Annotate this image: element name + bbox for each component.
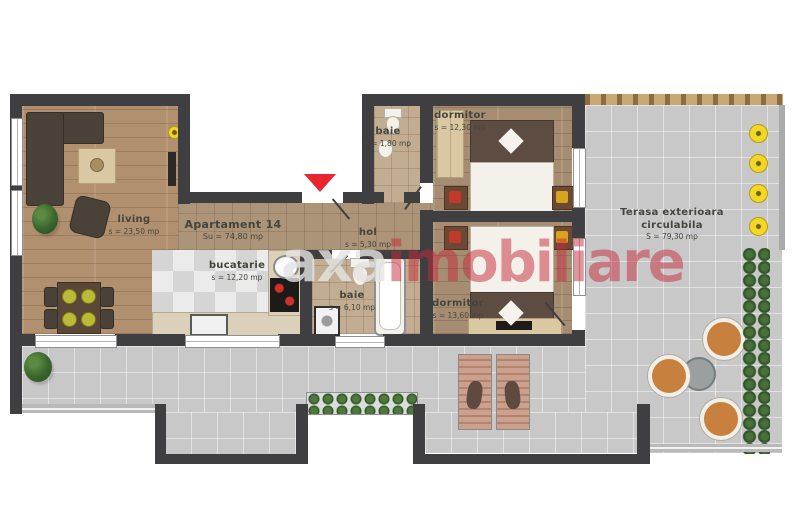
living-plant bbox=[32, 204, 58, 234]
stove bbox=[270, 278, 299, 312]
wall-bottom-4 bbox=[383, 334, 572, 346]
bedroom1-window bbox=[573, 148, 586, 208]
bath-window bbox=[335, 336, 385, 348]
living-window-2 bbox=[11, 190, 23, 256]
room-name: baie bbox=[358, 126, 418, 139]
terrace-floor-bumpout-left bbox=[165, 412, 296, 454]
apartment-title: Apartament 14 Su = 74,80 mp bbox=[163, 218, 303, 242]
sunbed bbox=[496, 354, 530, 430]
room-name: dormitor bbox=[408, 298, 508, 311]
room-area: s = 13,60 mp bbox=[408, 311, 508, 320]
wall-bottom-3 bbox=[278, 334, 335, 346]
wall-top-right bbox=[362, 94, 585, 106]
terrace-floor-bumpout-right bbox=[425, 412, 637, 453]
bath-label: baie s = 6,10 mp bbox=[317, 290, 387, 312]
spotlight-icon bbox=[749, 184, 768, 203]
sunbed bbox=[458, 354, 492, 430]
terrace-edge-bottom-right bbox=[650, 444, 782, 452]
gold-lamp bbox=[556, 191, 568, 203]
room-area: s = 12,30 mp bbox=[410, 123, 510, 132]
spotlight-icon bbox=[749, 217, 768, 236]
wall-right-3 bbox=[572, 330, 585, 346]
dining-table bbox=[57, 282, 101, 334]
wall-bath-small-bottom bbox=[374, 192, 384, 203]
spotlight-icon bbox=[749, 154, 768, 173]
wall-notch-bottom-right bbox=[343, 192, 374, 203]
kitchen-label: bucatarie s = 12,20 mp bbox=[192, 260, 282, 282]
red-lamp bbox=[449, 191, 461, 203]
bed2-body bbox=[470, 226, 554, 294]
apartment-name: Apartament 14 bbox=[163, 218, 303, 232]
living-window-1 bbox=[11, 118, 23, 186]
dining-chair bbox=[44, 309, 58, 329]
terrace-area: S = 79,30 mp bbox=[597, 232, 747, 241]
room-area: s = 23,50 mp bbox=[94, 227, 174, 236]
planter-box bbox=[306, 392, 418, 415]
terrace-name-line1: Terasa exterioara bbox=[597, 207, 747, 220]
wall-bumpout2-bottom bbox=[413, 454, 650, 464]
kitchen-sink bbox=[190, 314, 228, 336]
bed1-body bbox=[470, 162, 554, 214]
floor-plan: living s = 23,50 mp Apartament 14 Su = 7… bbox=[0, 0, 800, 514]
entrance-arrow-icon bbox=[304, 174, 336, 192]
terrace-chair bbox=[700, 398, 742, 440]
sofa-chaise bbox=[26, 112, 64, 206]
terrace-edge-bottom-left bbox=[22, 404, 155, 413]
terrace-edge-right bbox=[779, 105, 785, 250]
bedroom1-label: dormitor s = 12,30 mp bbox=[410, 110, 510, 132]
wall-bath-top-1 bbox=[312, 250, 332, 259]
kitchen-window bbox=[185, 335, 280, 348]
room-area: s = 12,20 mp bbox=[192, 273, 282, 282]
wall-notch-left bbox=[178, 94, 190, 204]
room-area: s = 1,80 mp bbox=[358, 139, 418, 148]
terrace-chair bbox=[703, 318, 745, 360]
spotlight-icon bbox=[749, 124, 768, 143]
room-name: hol bbox=[338, 227, 398, 240]
bedroom2-window bbox=[573, 238, 586, 296]
wall-bottom-2 bbox=[115, 334, 185, 346]
wall-top-left bbox=[10, 94, 190, 106]
terrace-plant bbox=[24, 352, 52, 382]
wall-notch-right bbox=[362, 94, 374, 204]
room-name: bucatarie bbox=[192, 260, 282, 273]
room-name: baie bbox=[317, 290, 387, 303]
bath-small-label: baie s = 1,80 mp bbox=[358, 126, 418, 148]
wall-bedrooms-vertical-bottom bbox=[420, 210, 433, 345]
wall-bath-top-2 bbox=[360, 250, 425, 259]
hall-label: hol s = 5,30 mp bbox=[338, 227, 398, 249]
gold-lamp bbox=[556, 231, 568, 243]
living-terrace-door bbox=[35, 335, 117, 348]
wall-bumpout1-bottom bbox=[155, 454, 308, 464]
wall-right-1 bbox=[572, 94, 585, 148]
terrace-name-line2: circulabila bbox=[597, 220, 747, 233]
red-lamp bbox=[449, 231, 461, 243]
hedge bbox=[742, 248, 770, 454]
wall-bottom-1 bbox=[22, 334, 35, 346]
terrace-top-railing bbox=[585, 94, 783, 105]
wall-kitchen-bath bbox=[300, 250, 312, 334]
dining-chair bbox=[100, 309, 114, 329]
wall-bedroom-divider bbox=[420, 211, 585, 222]
room-name: living bbox=[94, 214, 174, 227]
bedroom2-label: dormitor s = 13,60 mp bbox=[408, 298, 508, 320]
apartment-area: Su = 74,80 mp bbox=[163, 232, 303, 242]
dining-chair bbox=[44, 287, 58, 307]
room-area: s = 6,10 mp bbox=[317, 303, 387, 312]
coffee-table-decor bbox=[90, 158, 104, 172]
wall-notch-bottom-left bbox=[190, 192, 302, 203]
terrace-chair bbox=[648, 355, 690, 397]
tv bbox=[168, 152, 176, 186]
wall-right-2 bbox=[572, 206, 585, 238]
terrace-label: Terasa exterioara circulabila S = 79,30 … bbox=[597, 207, 747, 241]
room-area: s = 5,30 mp bbox=[338, 240, 398, 249]
dining-chair bbox=[100, 287, 114, 307]
living-label: living s = 23,50 mp bbox=[94, 214, 174, 236]
room-name: dormitor bbox=[410, 110, 510, 123]
